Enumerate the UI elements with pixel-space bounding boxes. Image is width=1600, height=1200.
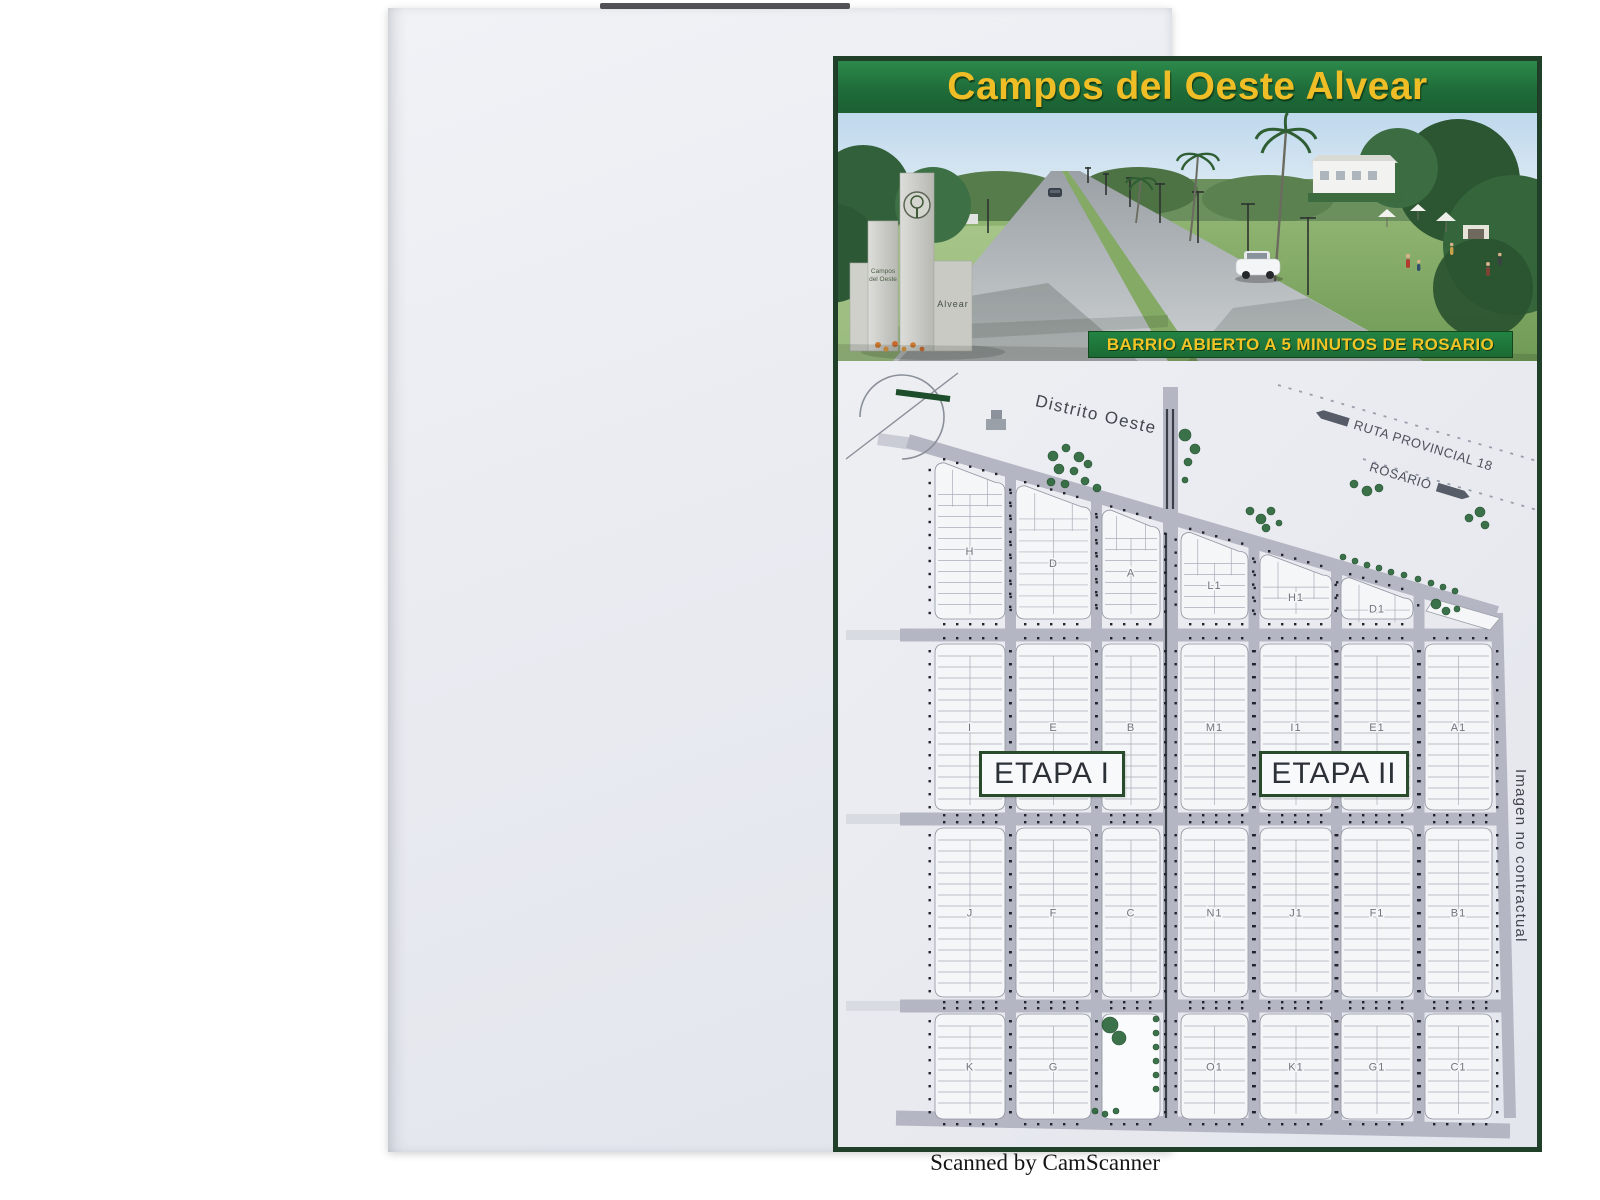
block-label-D: D bbox=[1049, 558, 1058, 570]
page-background: { "page": { "scan_credit": "Scanned by C… bbox=[0, 0, 1600, 1200]
block-label-B: B bbox=[1127, 722, 1135, 734]
block-label-H: H bbox=[966, 546, 975, 558]
block-label-E: E bbox=[1049, 722, 1057, 734]
block-label-C: C bbox=[1127, 908, 1136, 920]
block-label-O1: O1 bbox=[1206, 1062, 1223, 1074]
block-label-J1: J1 bbox=[1289, 908, 1303, 920]
photo-house bbox=[1308, 155, 1403, 202]
title-banner: Campos del Oeste Alvear bbox=[838, 61, 1537, 113]
scan-top-artifact bbox=[600, 3, 850, 9]
block-label-G1: G1 bbox=[1369, 1062, 1386, 1074]
ghost-streets-layer bbox=[846, 439, 920, 1006]
photo-scene: Campos del Oeste Alvear bbox=[838, 113, 1537, 361]
stage-2-label: ETAPA II bbox=[1271, 757, 1396, 791]
site-map: HDAL1H1D1IEBM1I1E1A1JFCN1J1F1B1KGO1K1G1C… bbox=[838, 361, 1537, 1147]
block-label-F: F bbox=[1050, 908, 1058, 920]
scanned-page: Campos del Oeste Alvear bbox=[388, 8, 1172, 1152]
block-label-K: K bbox=[966, 1062, 974, 1074]
block-label-I1: I1 bbox=[1290, 722, 1301, 734]
block-label-D1: D1 bbox=[1369, 604, 1385, 616]
monument-text-line1: Campos bbox=[871, 268, 896, 275]
stage-1-badge: ETAPA I bbox=[979, 751, 1125, 797]
block-label-I: I bbox=[968, 722, 972, 734]
block-label-G: G bbox=[1049, 1062, 1059, 1074]
monument-text-line2: del Oeste bbox=[869, 276, 897, 283]
stage-2-badge: ETAPA II bbox=[1259, 751, 1409, 797]
tagline-banner: BARRIO ABIERTO A 5 MINUTOS DE ROSARIO bbox=[1088, 331, 1513, 358]
photo: Campos del Oeste Alvear BARRIO ABIERTO A… bbox=[838, 113, 1537, 361]
monument-name: Alvear bbox=[937, 299, 969, 309]
block-label-M1: M1 bbox=[1206, 722, 1223, 734]
block-label-E1: E1 bbox=[1369, 722, 1384, 734]
map-block-H bbox=[935, 463, 1005, 619]
block-label-J: J bbox=[967, 908, 974, 920]
scan-credit: Scanned by CamScanner bbox=[930, 1150, 1160, 1176]
tagline-text: BARRIO ABIERTO A 5 MINUTOS DE ROSARIO bbox=[1107, 335, 1494, 355]
block-label-A1: A1 bbox=[1451, 722, 1466, 734]
flyer-title: Campos del Oeste Alvear bbox=[947, 65, 1427, 109]
district-building-icon bbox=[986, 410, 1006, 430]
block-label-H1: H1 bbox=[1288, 592, 1304, 604]
flyer: Campos del Oeste Alvear bbox=[833, 56, 1542, 1152]
map-block-A bbox=[1102, 510, 1160, 619]
block-label-C1: C1 bbox=[1450, 1062, 1466, 1074]
block-label-B1: B1 bbox=[1451, 908, 1466, 920]
block-label-F1: F1 bbox=[1370, 908, 1385, 920]
block-label-N1: N1 bbox=[1206, 908, 1222, 920]
disclaimer-vertical-text: Imagen no contractual bbox=[1512, 769, 1529, 969]
block-label-A: A bbox=[1127, 568, 1135, 580]
stage-1-label: ETAPA I bbox=[994, 757, 1110, 791]
block-label-L1: L1 bbox=[1207, 580, 1221, 592]
block-label-K1: K1 bbox=[1288, 1062, 1303, 1074]
photo-dark-car bbox=[1048, 188, 1062, 197]
map-block-L1 bbox=[1181, 532, 1248, 619]
map-block-D bbox=[1016, 486, 1091, 619]
